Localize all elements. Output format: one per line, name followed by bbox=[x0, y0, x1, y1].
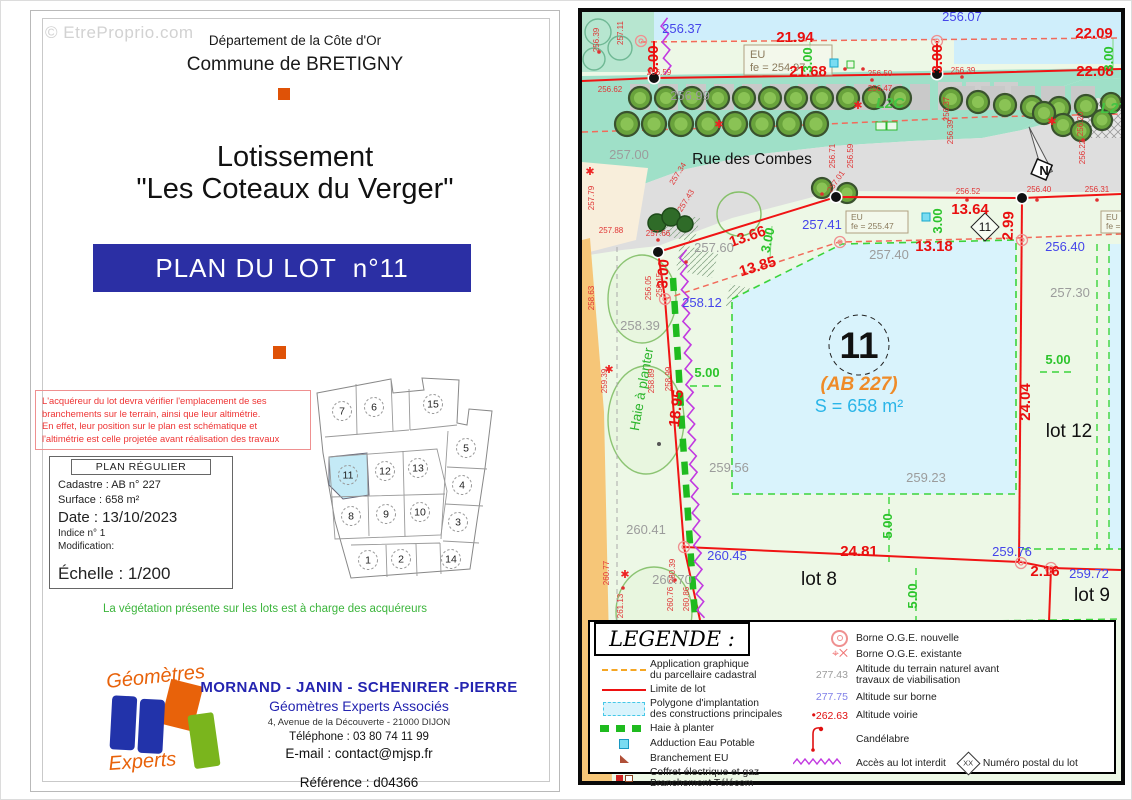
map-label: 260.77 bbox=[602, 560, 611, 585]
cadastral-dashed-icon bbox=[602, 669, 646, 671]
legend-item: Accès au lot interdit XX Numéro postal d… bbox=[786, 754, 1112, 772]
map-label: lot 8 bbox=[801, 569, 837, 590]
lot11-construction-polygon bbox=[732, 240, 1016, 494]
map-label: 5.00 bbox=[1045, 352, 1070, 367]
plan-regulier-box: PLAN RÉGULIER Cadastre : AB n° 227 Surfa… bbox=[49, 456, 233, 589]
lot-cadastre-ref: (AB 227) bbox=[820, 374, 897, 395]
svg-text:✱: ✱ bbox=[853, 100, 862, 112]
lotissement-title: Lotissement bbox=[31, 141, 559, 174]
map-label: 256.20 bbox=[1076, 111, 1085, 136]
map-label: 24.04 bbox=[1017, 383, 1034, 421]
map-label: 260.39 bbox=[668, 558, 677, 583]
branchement-eu-icon bbox=[620, 755, 629, 763]
svg-text:✱: ✱ bbox=[1047, 116, 1056, 128]
map-label: 5.00 bbox=[905, 583, 920, 608]
overview-lot-number: 2 bbox=[398, 554, 404, 566]
legend-item: Branchement EU bbox=[598, 751, 794, 766]
svg-text:✱: ✱ bbox=[620, 569, 629, 581]
firm-subtitle: Géomètres Experts Associés bbox=[181, 698, 537, 714]
postal-diamond-icon: XX bbox=[956, 751, 980, 775]
legend-item: Application graphiquedu parcellaire cada… bbox=[598, 658, 794, 682]
legend-item: 277.75 Altitude sur borne bbox=[786, 688, 1112, 706]
firm-phone: Téléphone : 03 80 74 11 99 bbox=[181, 731, 537, 743]
orange-square-bullet bbox=[273, 346, 286, 359]
map-label: 3.00 bbox=[929, 44, 946, 73]
plan-map-page: EU fe = 254.97 EU fe = 255.47 EU fe = 25… bbox=[578, 8, 1125, 785]
altitude-voirie-sample: •262.63 bbox=[786, 708, 856, 722]
department-line: Département de la Côte d'Or bbox=[31, 33, 559, 48]
map-label: 258.12 bbox=[682, 295, 722, 310]
legend-box: LEGENDE : Application graphiquedu parcel… bbox=[588, 620, 1116, 774]
map-label: 257.41 bbox=[802, 217, 842, 232]
map-label: 21.94 bbox=[776, 29, 814, 46]
map-label: 256.59 bbox=[647, 68, 672, 77]
vegetation-note: La végétation présente sur les lots est … bbox=[85, 603, 445, 615]
map-label: 256.37 bbox=[662, 21, 702, 36]
overview-lot-number: 13 bbox=[412, 463, 424, 475]
legend-right-column: Borne O.G.E. nouvelle ⌖✕ Borne O.G.E. ex… bbox=[786, 630, 1112, 772]
adduction-eau-icon bbox=[619, 739, 629, 749]
map-label: 5.00 bbox=[694, 365, 719, 380]
haie-icon bbox=[600, 725, 648, 732]
map-label: 258.63 bbox=[587, 285, 596, 310]
logo-text-bottom: Experts bbox=[108, 748, 177, 775]
legend-item: ⌖✕ Borne O.G.E. existante bbox=[786, 646, 1112, 662]
overview-lot-number: 12 bbox=[379, 466, 391, 478]
overview-lot-number: 5 bbox=[463, 443, 469, 455]
overview-lot-number: 4 bbox=[459, 480, 465, 492]
borne-nouvelle-icon bbox=[831, 630, 848, 647]
svg-text:✱: ✱ bbox=[585, 166, 594, 178]
map-label: 3.00 bbox=[930, 208, 945, 233]
surface-field: Surface : 658 m² bbox=[50, 494, 232, 506]
map-label: 257.00 bbox=[609, 147, 649, 162]
svg-text:N: N bbox=[1039, 163, 1048, 178]
map-label: 256.99 bbox=[670, 88, 710, 103]
warning-line: branchements sur le terrain, ainsi que l… bbox=[42, 408, 304, 421]
title-page: © EtreProprio.com Département de la Côte… bbox=[30, 10, 560, 792]
svg-text:EU: EU bbox=[750, 49, 765, 61]
map-label: 5.00 bbox=[880, 513, 895, 538]
overview-lot-number: 10 bbox=[414, 507, 426, 519]
map-label: 258.89 bbox=[647, 368, 656, 393]
map-label: 256.47 bbox=[868, 84, 893, 93]
orange-square-bullet bbox=[278, 88, 290, 100]
map-label: 2.16 bbox=[1030, 563, 1059, 580]
reference: Référence : d04366 bbox=[181, 775, 537, 790]
legend-item: Borne O.G.E. nouvelle bbox=[786, 630, 1112, 646]
lot12-construction-strip bbox=[1109, 244, 1121, 549]
logo-blue-shape bbox=[137, 699, 165, 754]
map-label: 260.76 bbox=[666, 586, 675, 611]
map-label: 22.09 bbox=[1075, 25, 1113, 42]
map-label: 256.31 bbox=[1085, 185, 1110, 194]
map-label: 259.23 bbox=[906, 470, 946, 485]
map-label: 256.39 bbox=[951, 66, 976, 75]
legend-item: Haie à planter bbox=[598, 721, 794, 736]
map-label: 13.64 bbox=[951, 201, 989, 218]
legend-item: Coffret électrique et gazBranchement Tél… bbox=[598, 766, 794, 790]
street-name: Rue des Combes bbox=[692, 151, 812, 168]
plan-du-lot-banner: PLAN DU LOT n°11 bbox=[93, 244, 471, 292]
map-label: lot 9 bbox=[1074, 585, 1110, 606]
map-label: 258.39 bbox=[620, 318, 660, 333]
map-label: 257.88 bbox=[599, 226, 624, 235]
map-label: L2C bbox=[876, 95, 906, 112]
north-blue-band bbox=[954, 40, 1121, 64]
cadastre-field: Cadastre : AB n° 227 bbox=[50, 479, 232, 491]
overview-lot-number: 14 bbox=[445, 554, 457, 566]
map-label: 3.00 bbox=[800, 47, 815, 72]
warning-line: L'acquéreur du lot devra vérifier l'empl… bbox=[42, 395, 304, 408]
svg-text:fe = 255.47: fe = 255.47 bbox=[851, 221, 894, 231]
date-field: Date : 13/10/2023 bbox=[50, 509, 232, 526]
map-label: 261.13 bbox=[616, 593, 625, 618]
legend-item: •262.63 Altitude voirie bbox=[786, 706, 1112, 724]
warning-line: En effet, leur position sur le plan est … bbox=[42, 420, 304, 433]
logo-blue-shape bbox=[110, 695, 138, 750]
altitude-terrain-sample: 277.43 bbox=[786, 669, 856, 681]
lots-overview-map: 761554314128910111213 bbox=[299, 373, 514, 591]
construction-polygon-icon bbox=[603, 702, 645, 716]
overview-lot-number: 1 bbox=[365, 555, 371, 567]
map-label: 256.50 bbox=[868, 69, 893, 78]
overview-lot-number: 11 bbox=[343, 470, 354, 482]
map-label: 256.59 bbox=[846, 143, 855, 168]
map-label: 256.15 bbox=[655, 272, 664, 297]
map-label: 13.18 bbox=[915, 238, 953, 255]
map-label: 257.30 bbox=[1050, 285, 1090, 300]
map-label: 256.62 bbox=[598, 85, 623, 94]
postal-label: Numéro postal du lot bbox=[983, 758, 1078, 769]
map-label: 256.39 bbox=[946, 119, 955, 144]
map-label: 256.71 bbox=[828, 143, 837, 168]
commune-line: Commune de BRETIGNY bbox=[31, 54, 559, 76]
map-label: 256.37 bbox=[942, 96, 951, 121]
map-label: 257.11 bbox=[616, 21, 625, 45]
lot-area: S = 658 m² bbox=[815, 396, 904, 416]
svg-text:11: 11 bbox=[979, 220, 992, 234]
map-label: 256.39 bbox=[592, 27, 601, 52]
lot-limit-icon bbox=[602, 689, 646, 691]
lotissement-subtitle: "Les Coteaux du Verger" bbox=[31, 173, 559, 206]
legend-item: Polygone d'implantationdes constructions… bbox=[598, 697, 794, 721]
borne-existante-icon: ⌖✕ bbox=[832, 646, 848, 660]
candelabre-icon bbox=[786, 724, 856, 755]
map-label: 257.66 bbox=[646, 229, 671, 238]
acces-interdit-icon bbox=[786, 757, 856, 770]
legend-item: Adduction Eau Potable bbox=[598, 736, 794, 751]
map-label: 256.52 bbox=[956, 187, 981, 196]
map-label: 257.60 bbox=[694, 240, 734, 255]
map-label: 258.99 bbox=[664, 366, 673, 391]
legend-item: Limite de lot bbox=[598, 682, 794, 697]
map-label: 2.99 bbox=[999, 211, 1017, 241]
warning-box: L'acquéreur du lot devra vérifier l'empl… bbox=[35, 390, 311, 450]
overview-lot-number: 9 bbox=[383, 509, 389, 521]
map-label: 256.40 bbox=[1027, 185, 1052, 194]
overview-lot-number: 6 bbox=[371, 402, 377, 414]
overview-lot-number: 8 bbox=[348, 511, 354, 523]
map-label: 260.45 bbox=[707, 548, 747, 563]
legend-item: 277.43 Altitude du terrain naturel avant… bbox=[786, 662, 1112, 688]
legend-left-column: Application graphiquedu parcellaire cada… bbox=[598, 658, 794, 790]
overview-lot-number: 7 bbox=[339, 406, 345, 418]
map-label: 259.39 bbox=[600, 368, 609, 393]
map-label: L2T bbox=[1101, 100, 1121, 117]
legend-item: Candélabre bbox=[786, 724, 1112, 754]
firm-address: 4, Avenue de la Découverte - 21000 DIJON bbox=[181, 717, 537, 728]
map-label: 260.86 bbox=[682, 586, 691, 611]
map-label: 256.40 bbox=[1045, 239, 1085, 254]
map-label: 259.76 bbox=[992, 544, 1032, 559]
map-label: 257.79 bbox=[587, 185, 596, 210]
altitude-borne-sample: 277.75 bbox=[786, 691, 856, 703]
warning-line: l'altimétrie est celle projetée avant ré… bbox=[42, 433, 304, 446]
map-label: lot 12 bbox=[1046, 421, 1092, 442]
map-label: 256.07 bbox=[942, 12, 982, 24]
echelle-field: Échelle : 1/200 bbox=[50, 564, 232, 584]
svg-text:✱: ✱ bbox=[714, 119, 723, 131]
firm-email: E-mail : contact@mjsp.fr bbox=[181, 746, 537, 761]
firm-footer: MORNAND - JANIN - SCHENIRER -PIERRE Géom… bbox=[181, 679, 537, 790]
svg-text:fe = 254: fe = 254 bbox=[1106, 221, 1121, 231]
map-label: 260.41 bbox=[626, 522, 666, 537]
modification-field: Modification: bbox=[50, 541, 232, 552]
north-blue-band bbox=[644, 12, 1121, 40]
coffret-icon bbox=[616, 775, 633, 782]
map-label: 256.22 bbox=[1078, 139, 1087, 164]
firm-names: MORNAND - JANIN - SCHENIRER -PIERRE bbox=[181, 679, 537, 696]
overview-lot-number: 15 bbox=[427, 399, 439, 411]
lot-number: 11 bbox=[839, 325, 878, 366]
overview-lot-number: 3 bbox=[455, 517, 461, 529]
map-label: 24.81 bbox=[840, 543, 878, 560]
map-label: 259.72 bbox=[1069, 566, 1109, 581]
map-label: 256.05 bbox=[644, 275, 653, 300]
plan-regulier-title: PLAN RÉGULIER bbox=[71, 459, 211, 475]
map-label: 257.40 bbox=[869, 247, 909, 262]
legend-title: LEGENDE : bbox=[594, 622, 750, 656]
indice-field: Indice n° 1 bbox=[50, 528, 232, 539]
map-label: 259.56 bbox=[709, 460, 749, 475]
map-label: 3.00 bbox=[1101, 46, 1116, 71]
